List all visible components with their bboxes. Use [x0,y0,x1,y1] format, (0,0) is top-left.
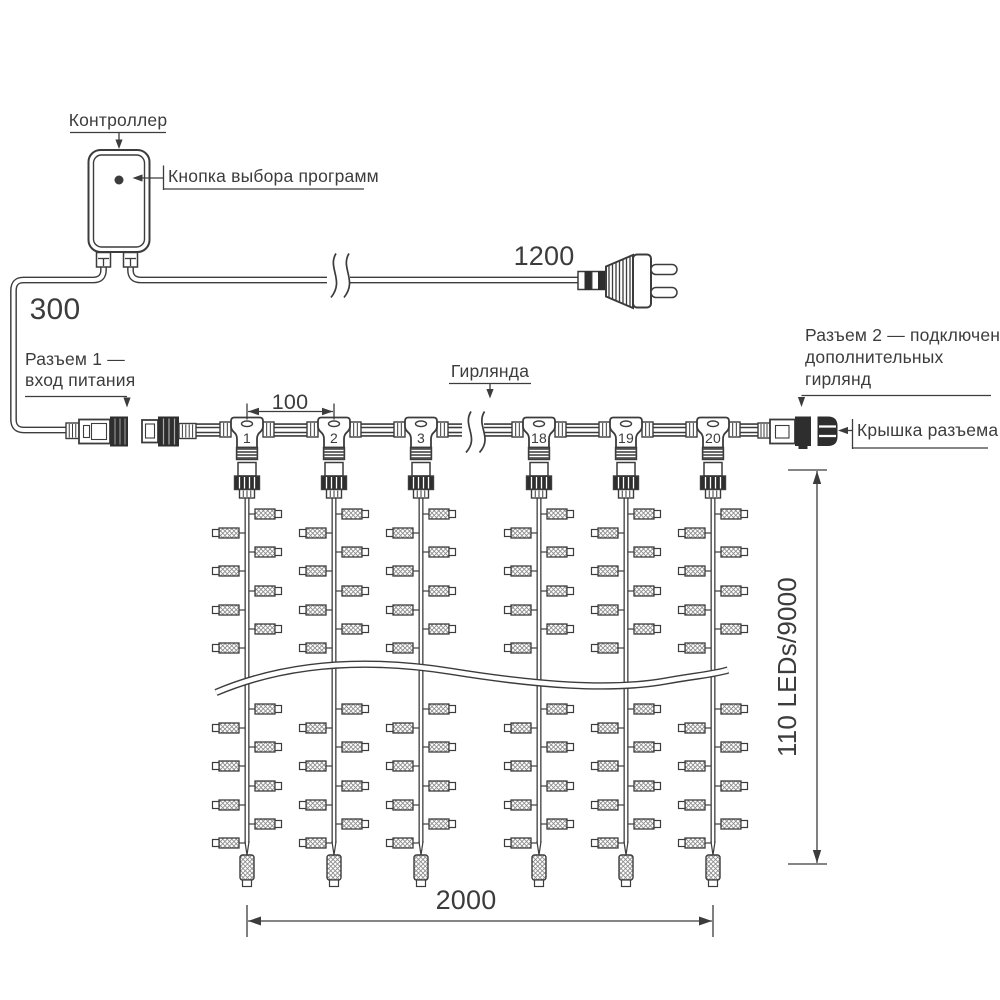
led [679,723,712,733]
led [423,781,456,791]
garland-break-icon [466,412,485,453]
tee-junction: 19 [599,418,653,448]
led [505,838,538,848]
led [628,742,661,752]
led [336,547,369,557]
led [715,586,748,596]
led [336,819,369,829]
curtain-drops: 123181920 [213,418,748,887]
led [592,761,625,771]
led [423,509,456,519]
power-plug [578,252,677,310]
garland-label: Гирлянда [451,361,529,381]
led [628,624,661,634]
led [423,624,456,634]
drop-19: 19 [592,418,661,887]
led [300,643,333,653]
led [387,528,420,538]
led [336,781,369,791]
tee-number: 19 [618,430,634,446]
led [423,547,456,557]
led [679,566,712,576]
label-connector1: Разъем 1 — вход питания [25,349,135,408]
tee-number: 2 [330,430,338,446]
end-led [532,855,546,887]
led [628,781,661,791]
drop-length-break-wave [216,664,728,692]
tee-number: 3 [417,430,425,446]
led [505,528,538,538]
drop-20: 20 [679,418,748,887]
connector-cap-label: Крышка разъема [857,420,998,440]
led [541,624,574,634]
connector-cap [818,417,838,447]
led [387,566,420,576]
tee-number: 18 [531,430,547,446]
led [213,838,246,848]
led [679,800,712,810]
connector2-label-line3: гирлянд [805,369,871,389]
led [715,781,748,791]
led [213,566,246,576]
drop-connector [235,448,260,499]
led [387,761,420,771]
program-button-label: Кнопка выбора программ [168,166,379,186]
led [541,586,574,596]
power-wire-right [131,265,580,280]
led [300,528,333,538]
garland-wiring-diagram: 123181920 Контроллер Кнопка выбора прогр… [0,0,1000,1000]
led [213,761,246,771]
connector1-female [142,417,196,447]
connector2-label-line1: Разъем 2 — подключение [805,325,1000,345]
led [336,586,369,596]
led [505,800,538,810]
connector1-label-line2: вход питания [25,370,135,390]
led [249,586,282,596]
label-garland: Гирлянда [449,361,531,399]
end-led [706,855,720,887]
tee-number: 20 [705,430,721,446]
led [541,509,574,519]
led [300,723,333,733]
led [213,528,246,538]
led [592,566,625,576]
led [541,742,574,752]
led [715,547,748,557]
led [336,742,369,752]
led [541,781,574,791]
dim-100: 100 [247,390,334,420]
led [387,605,420,615]
connector1-label-line1: Разъем 1 — [25,349,125,369]
connector2-assembly [758,417,838,450]
drop-connector [701,448,726,499]
led [213,605,246,615]
led [715,704,748,714]
dim-2000: 2000 [247,885,713,937]
connector1-male [66,417,128,447]
led [592,605,625,615]
led [505,761,538,771]
led [249,624,282,634]
led [628,819,661,829]
dim-300-value: 300 [30,293,81,326]
drop-connector [614,448,639,499]
led [715,819,748,829]
led [249,742,282,752]
led [213,800,246,810]
dim-1200-value: 1200 [514,241,575,271]
led [505,723,538,733]
led [387,800,420,810]
controller-output-right [124,253,138,268]
dim-height: 110 LEDs/9000 [772,470,827,864]
led [679,838,712,848]
led [423,704,456,714]
led [387,723,420,733]
drop-connector [527,448,552,499]
led [679,605,712,615]
dim-100-value: 100 [272,390,308,414]
led [336,704,369,714]
led [679,643,712,653]
dim-height-value: 110 LEDs/9000 [772,577,802,757]
dim-2000-value: 2000 [436,885,497,915]
controller-output-left [97,253,111,268]
label-connector-cap: Крышка разъема [838,419,998,449]
led [592,838,625,848]
label-connector2: Разъем 2 — подключение дополнительных ги… [798,325,1000,407]
led [715,509,748,519]
led [592,643,625,653]
label-controller: Контроллер [69,110,168,149]
end-led [240,855,254,887]
led [300,800,333,810]
led [541,704,574,714]
led [300,566,333,576]
led [715,624,748,634]
drop-1: 1 [213,418,282,887]
dim-300: 300 [30,293,81,326]
drop-2: 2 [300,418,369,887]
led [249,704,282,714]
end-led [619,855,633,887]
led [336,509,369,519]
led [213,643,246,653]
led [541,547,574,557]
led [505,566,538,576]
led [423,742,456,752]
led [541,819,574,829]
led [249,509,282,519]
led [592,800,625,810]
led [300,761,333,771]
program-button[interactable] [115,176,124,185]
drop-3: 3 [387,418,456,887]
tee-junction: 2 [307,418,361,448]
dim-1200: 1200 [514,241,575,271]
led [715,742,748,752]
led [628,586,661,596]
connector1-pair [66,417,196,447]
led [423,586,456,596]
tee-junction: 3 [394,418,448,448]
tee-junction: 20 [686,418,740,448]
led [592,528,625,538]
controller [89,150,150,267]
connector2-label-line2: дополнительных [805,347,944,367]
controller-label: Контроллер [69,110,168,130]
led [249,819,282,829]
tee-number: 1 [243,430,251,446]
label-program-button: Кнопка выбора программ [133,166,379,191]
drop-18: 18 [505,418,574,887]
led [628,547,661,557]
led [505,605,538,615]
led [423,819,456,829]
led [336,624,369,634]
end-led [327,855,341,887]
plug-prong-bottom [651,288,677,298]
led [300,605,333,615]
end-led [414,855,428,887]
led [505,643,538,653]
connector2 [795,417,811,450]
cord-break-icon [331,254,350,298]
led [213,723,246,733]
led [300,838,333,848]
plug-prong-top [651,265,677,275]
tee-junction: 18 [512,418,566,448]
led [249,781,282,791]
led [249,547,282,557]
drop-connector [409,448,434,499]
tee-junction: 1 [220,418,274,448]
led [628,704,661,714]
led [592,723,625,733]
led [387,643,420,653]
led [679,761,712,771]
drop-connector [322,448,347,499]
led [628,509,661,519]
power-wire-left [14,265,104,430]
diagram-canvas: 123181920 Контроллер Кнопка выбора прогр… [0,0,1000,1000]
led [679,528,712,538]
led [387,838,420,848]
